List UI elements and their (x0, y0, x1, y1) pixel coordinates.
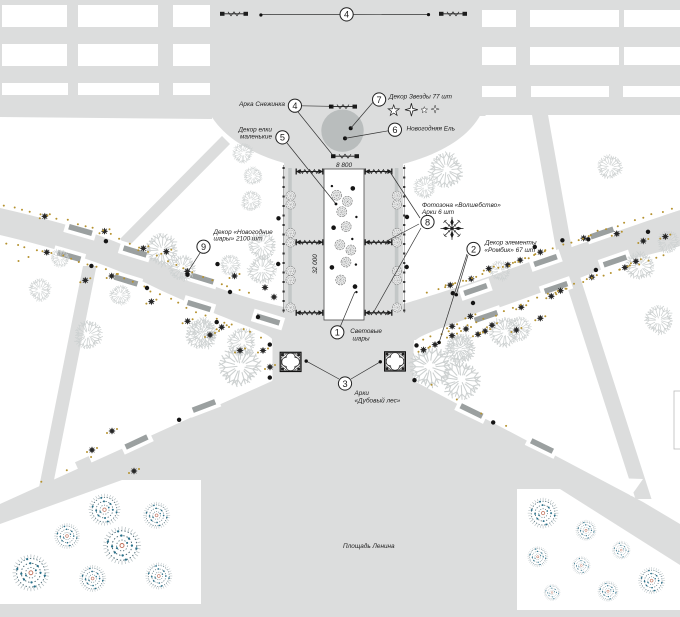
svg-text:6: 6 (392, 125, 397, 135)
svg-text:Декор элементы: Декор элементы (484, 239, 537, 246)
svg-text:Декор Звезды 77 шт: Декор Звезды 77 шт (388, 92, 453, 100)
svg-text:8: 8 (425, 217, 430, 227)
svg-text:8 800: 8 800 (336, 162, 352, 169)
svg-text:2: 2 (471, 244, 476, 254)
svg-text:4: 4 (344, 10, 349, 20)
svg-text:Световые: Световые (350, 328, 382, 335)
svg-text:Новогодняя Ель: Новогодняя Ель (407, 124, 455, 132)
svg-text:Фотозона «Волшебство»: Фотозона «Волшебство» (422, 201, 501, 209)
svg-text:Декор елки: Декор елки (238, 127, 273, 134)
svg-text:«Ромбик» 67 шт: «Ромбик» 67 шт (484, 246, 535, 254)
svg-text:1: 1 (335, 328, 340, 338)
svg-text:5: 5 (280, 133, 285, 143)
svg-text:«Дубовый лес»: «Дубовый лес» (355, 397, 401, 405)
svg-text:шары» 2100 шт: шары» 2100 шт (214, 235, 264, 242)
svg-text:Арка Снежинка: Арка Снежинка (238, 101, 285, 108)
svg-text:Площадь Ленина: Площадь Ленина (343, 542, 395, 550)
svg-text:4: 4 (292, 101, 297, 111)
svg-text:7: 7 (377, 95, 382, 105)
svg-text:9: 9 (201, 242, 206, 252)
svg-text:шары: шары (353, 335, 370, 342)
svg-text:Арки 6 шт: Арки 6 шт (421, 209, 455, 216)
svg-text:3: 3 (342, 379, 347, 389)
svg-text:32 000: 32 000 (312, 254, 319, 274)
svg-text:маленькие: маленькие (240, 134, 272, 141)
svg-text:Арки: Арки (354, 390, 370, 397)
